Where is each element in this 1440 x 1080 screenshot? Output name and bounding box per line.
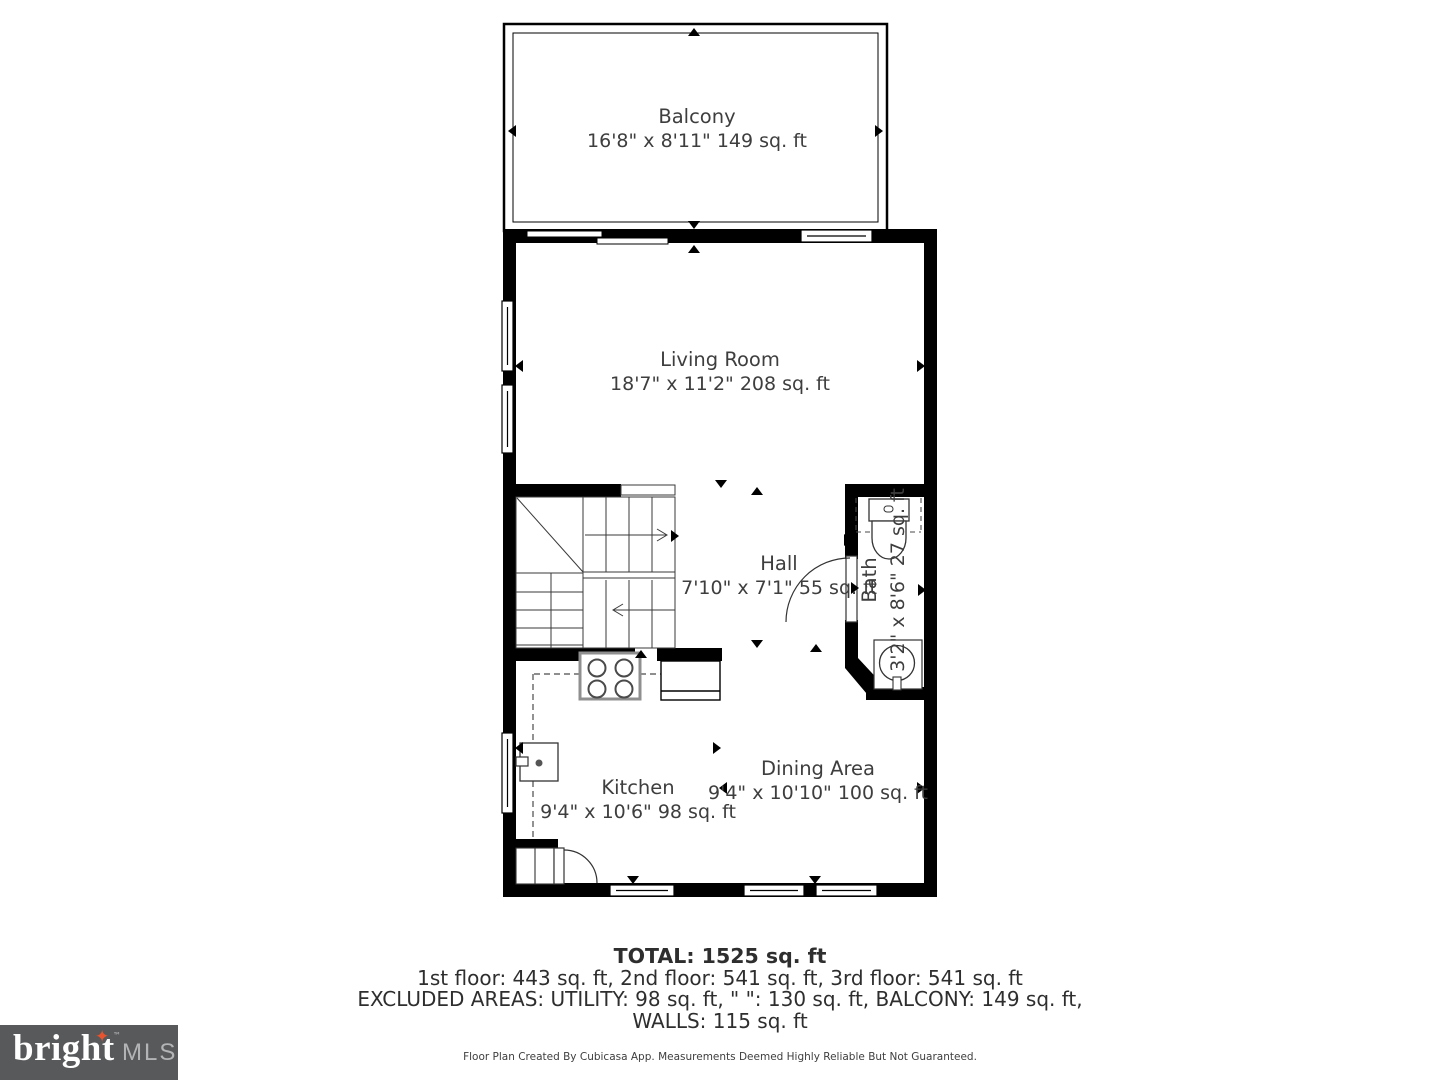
arrow-down-icon	[627, 876, 639, 884]
room-name: Kitchen	[540, 776, 736, 800]
arrow-up-icon	[688, 245, 700, 253]
room-dims: 9'4" x 10'6" 98 sq. ft	[540, 800, 736, 824]
hall-label: Hall 7'10" x 7'1" 55 sq. ft	[681, 552, 877, 600]
living-room-label: Living Room 18'7" x 11'2" 208 sq. ft	[610, 348, 830, 396]
room-dims: 7'10" x 7'1" 55 sq. ft	[681, 576, 877, 600]
room-name: Hall	[681, 552, 877, 576]
dimension-arrows	[508, 28, 926, 884]
bath-label: Bath 3'2" x 8'6" 27 sq. ft	[856, 488, 912, 672]
arrow-up-icon	[688, 28, 700, 36]
dining-bottom-window-1	[744, 885, 804, 896]
arrow-right-icon	[713, 742, 721, 754]
room-name: Balcony	[587, 105, 807, 129]
area-summary: TOTAL: 1525 sq. ft 1st floor: 443 sq. ft…	[0, 946, 1440, 1063]
kitchen-bottom-window	[610, 885, 674, 896]
kitchen-window	[502, 733, 513, 813]
arrow-down-icon	[715, 480, 727, 488]
room-dims: 18'7" x 11'2" 208 sq. ft	[610, 372, 830, 396]
floor-plan-page: Balcony 16'8" x 8'11" 149 sq. ft Living …	[0, 0, 1440, 1080]
arrow-down-icon	[751, 640, 763, 648]
balcony-label: Balcony 16'8" x 8'11" 149 sq. ft	[587, 105, 807, 153]
kitchen-door	[554, 848, 597, 884]
closet	[516, 848, 554, 884]
kitchen-fixtures	[516, 653, 720, 884]
logo-suffix: MLS	[122, 1039, 177, 1067]
refrigerator-icon	[661, 661, 720, 700]
room-name: Living Room	[610, 348, 830, 372]
room-name: Bath	[856, 488, 884, 672]
kitchen-label: Kitchen 9'4" x 10'6" 98 sq. ft	[540, 776, 736, 824]
floor-plan-drawing	[0, 0, 1440, 1080]
room-dims: 3'2" x 8'6" 27 sq. ft	[884, 488, 912, 672]
living-room-window-1	[502, 301, 513, 371]
walls-area: WALLS: 115 sq. ft	[0, 1011, 1440, 1032]
disclaimer-text: Floor Plan Created By Cubicasa App. Meas…	[0, 1051, 1440, 1063]
star-icon: ✦	[95, 1027, 109, 1047]
arrow-left-icon	[508, 125, 516, 137]
dining-area-label: Dining Area 9'4" x 10'10" 100 sq. ft	[708, 757, 928, 805]
living-room-window-2	[502, 385, 513, 453]
arrow-up-icon	[810, 644, 822, 652]
excluded-areas: EXCLUDED AREAS: UTILITY: 98 sq. ft, " ":…	[0, 989, 1440, 1010]
stove-icon	[580, 653, 640, 699]
room-dims: 9'4" x 10'10" 100 sq. ft	[708, 781, 928, 805]
arrow-right-icon	[917, 360, 925, 372]
floor-areas: 1st floor: 443 sq. ft, 2nd floor: 541 sq…	[0, 968, 1440, 989]
trademark-symbol: ™	[113, 1031, 121, 1040]
living-room-top-window	[801, 230, 872, 242]
dining-bottom-window-2	[816, 885, 877, 896]
staircase	[516, 485, 675, 648]
bright-mls-logo: bright ✦ ™ MLS	[0, 1025, 178, 1080]
arrow-up-icon	[751, 487, 763, 495]
arrow-left-icon	[515, 360, 523, 372]
arrow-right-icon	[875, 125, 883, 137]
room-name: Dining Area	[708, 757, 928, 781]
arrow-down-icon	[688, 221, 700, 229]
total-area: TOTAL: 1525 sq. ft	[0, 946, 1440, 967]
arrow-left-icon	[515, 742, 523, 754]
room-dims: 16'8" x 8'11" 149 sq. ft	[587, 129, 807, 153]
arrow-down-icon	[809, 876, 821, 884]
